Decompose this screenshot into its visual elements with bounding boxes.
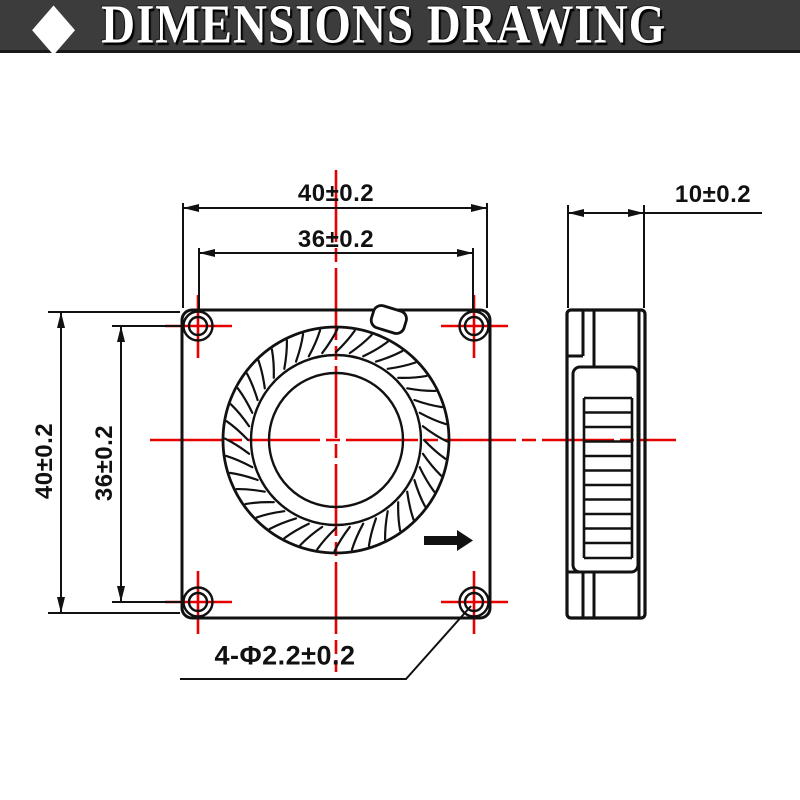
impeller-blade <box>350 335 372 353</box>
drawing-canvas <box>0 0 800 800</box>
impeller-blade <box>231 404 249 426</box>
impeller-blade <box>388 363 416 369</box>
impeller-blade <box>423 454 441 476</box>
impeller-blade <box>284 341 287 369</box>
airflow-direction-arrow-icon <box>424 530 473 551</box>
impeller-blade <box>420 413 446 424</box>
wire-notch <box>369 304 408 336</box>
impeller-blade <box>296 334 303 362</box>
impeller-blade <box>227 421 248 440</box>
dimension-side-depth-label: 10±0.2 <box>675 181 751 209</box>
impeller-blade <box>336 331 355 352</box>
impeller-blade <box>230 473 258 480</box>
dimension-left-height-label: 40±0.2 <box>31 423 59 499</box>
mounting-holes-note-label: 4-Φ2.2±0.2 <box>214 641 355 672</box>
impeller-blade <box>398 502 400 530</box>
side-vent-slats <box>584 398 632 558</box>
impeller-blade <box>284 524 309 539</box>
impeller-blade <box>270 518 296 529</box>
impeller-blade <box>237 489 265 492</box>
impeller-blade <box>424 440 445 459</box>
impeller-blade <box>272 349 274 377</box>
centerlines <box>150 170 676 672</box>
impeller-blade <box>247 374 258 400</box>
impeller-blade <box>420 467 435 492</box>
impeller-blade <box>317 528 336 549</box>
impeller-blade <box>352 524 363 550</box>
impeller-blade <box>369 518 376 546</box>
dimensions-drawing-page: ◆ DIMENSIONS DRAWING <box>0 0 800 800</box>
impeller-blade <box>309 330 320 356</box>
impeller-blade <box>238 388 253 413</box>
impeller-blade <box>414 400 442 407</box>
impeller-blade <box>385 511 388 539</box>
impeller-blade <box>245 502 273 504</box>
impeller-blade <box>363 342 388 357</box>
dimension-left-inner-height-label: 36±0.2 <box>91 425 119 501</box>
impeller-blade <box>259 361 265 389</box>
impeller-blade <box>414 480 425 506</box>
impeller-blade <box>376 351 402 362</box>
dimension-top-width-label: 40±0.2 <box>298 180 374 208</box>
impeller-blade <box>407 388 435 391</box>
impeller-blade <box>398 376 426 378</box>
impeller-blade <box>257 511 285 517</box>
dimension-top-inner-width-label: 36±0.2 <box>298 226 374 254</box>
hole-crosshair <box>441 571 508 634</box>
impeller-blade <box>226 456 252 467</box>
hole-crosshair <box>441 295 508 358</box>
impeller-blade <box>407 492 413 520</box>
fan-side-view <box>567 310 645 618</box>
impeller-blade <box>300 527 322 545</box>
